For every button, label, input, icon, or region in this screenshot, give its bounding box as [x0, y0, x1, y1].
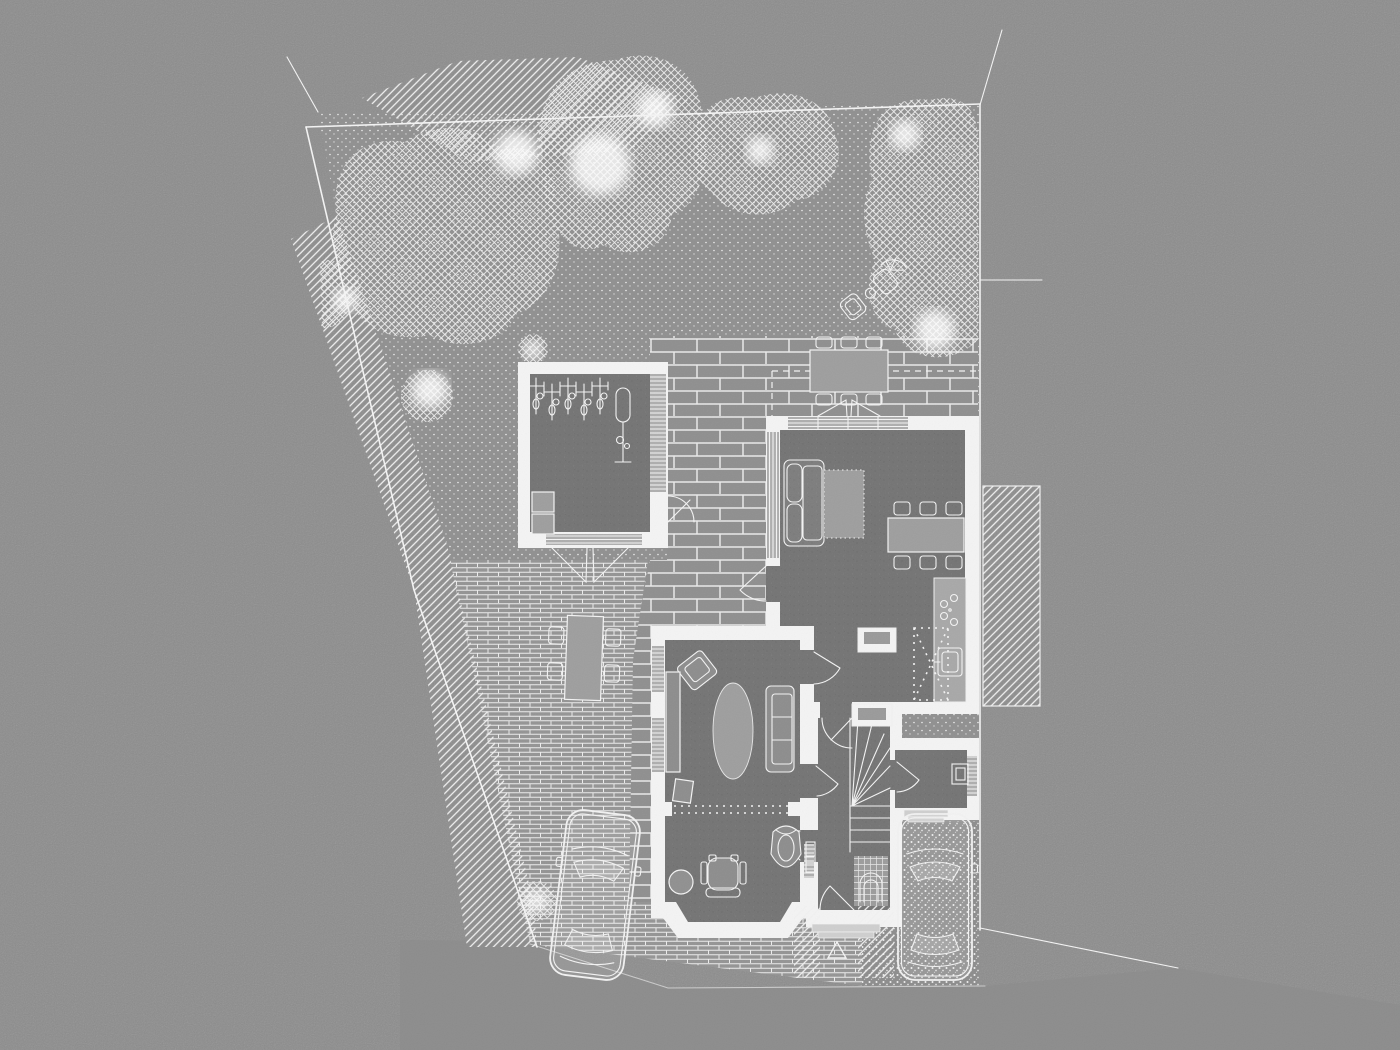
neighbour-roof [983, 486, 1040, 706]
porch-step [818, 932, 874, 938]
tiled-vestibule [854, 856, 888, 906]
lounge-chair [771, 826, 801, 867]
planting-flank [794, 906, 820, 978]
side-table [673, 779, 694, 803]
porch-step [812, 924, 880, 932]
car-on-gravel-drive [893, 814, 978, 980]
snug-sofa [766, 686, 794, 772]
wall-cabinet [852, 704, 892, 726]
site-plan-drawing [0, 0, 1400, 1050]
sideboard [666, 672, 680, 772]
oval-rug [713, 683, 753, 779]
planting-flank [858, 906, 894, 978]
rug [824, 470, 864, 538]
kitchen-counter [934, 578, 966, 702]
cabinet [858, 628, 896, 652]
storage-box [532, 514, 554, 534]
storage-box [532, 492, 554, 512]
round-stool [669, 870, 693, 894]
plan-canvas [0, 0, 1400, 1050]
sofa [784, 460, 824, 546]
bay-floor [676, 902, 792, 922]
